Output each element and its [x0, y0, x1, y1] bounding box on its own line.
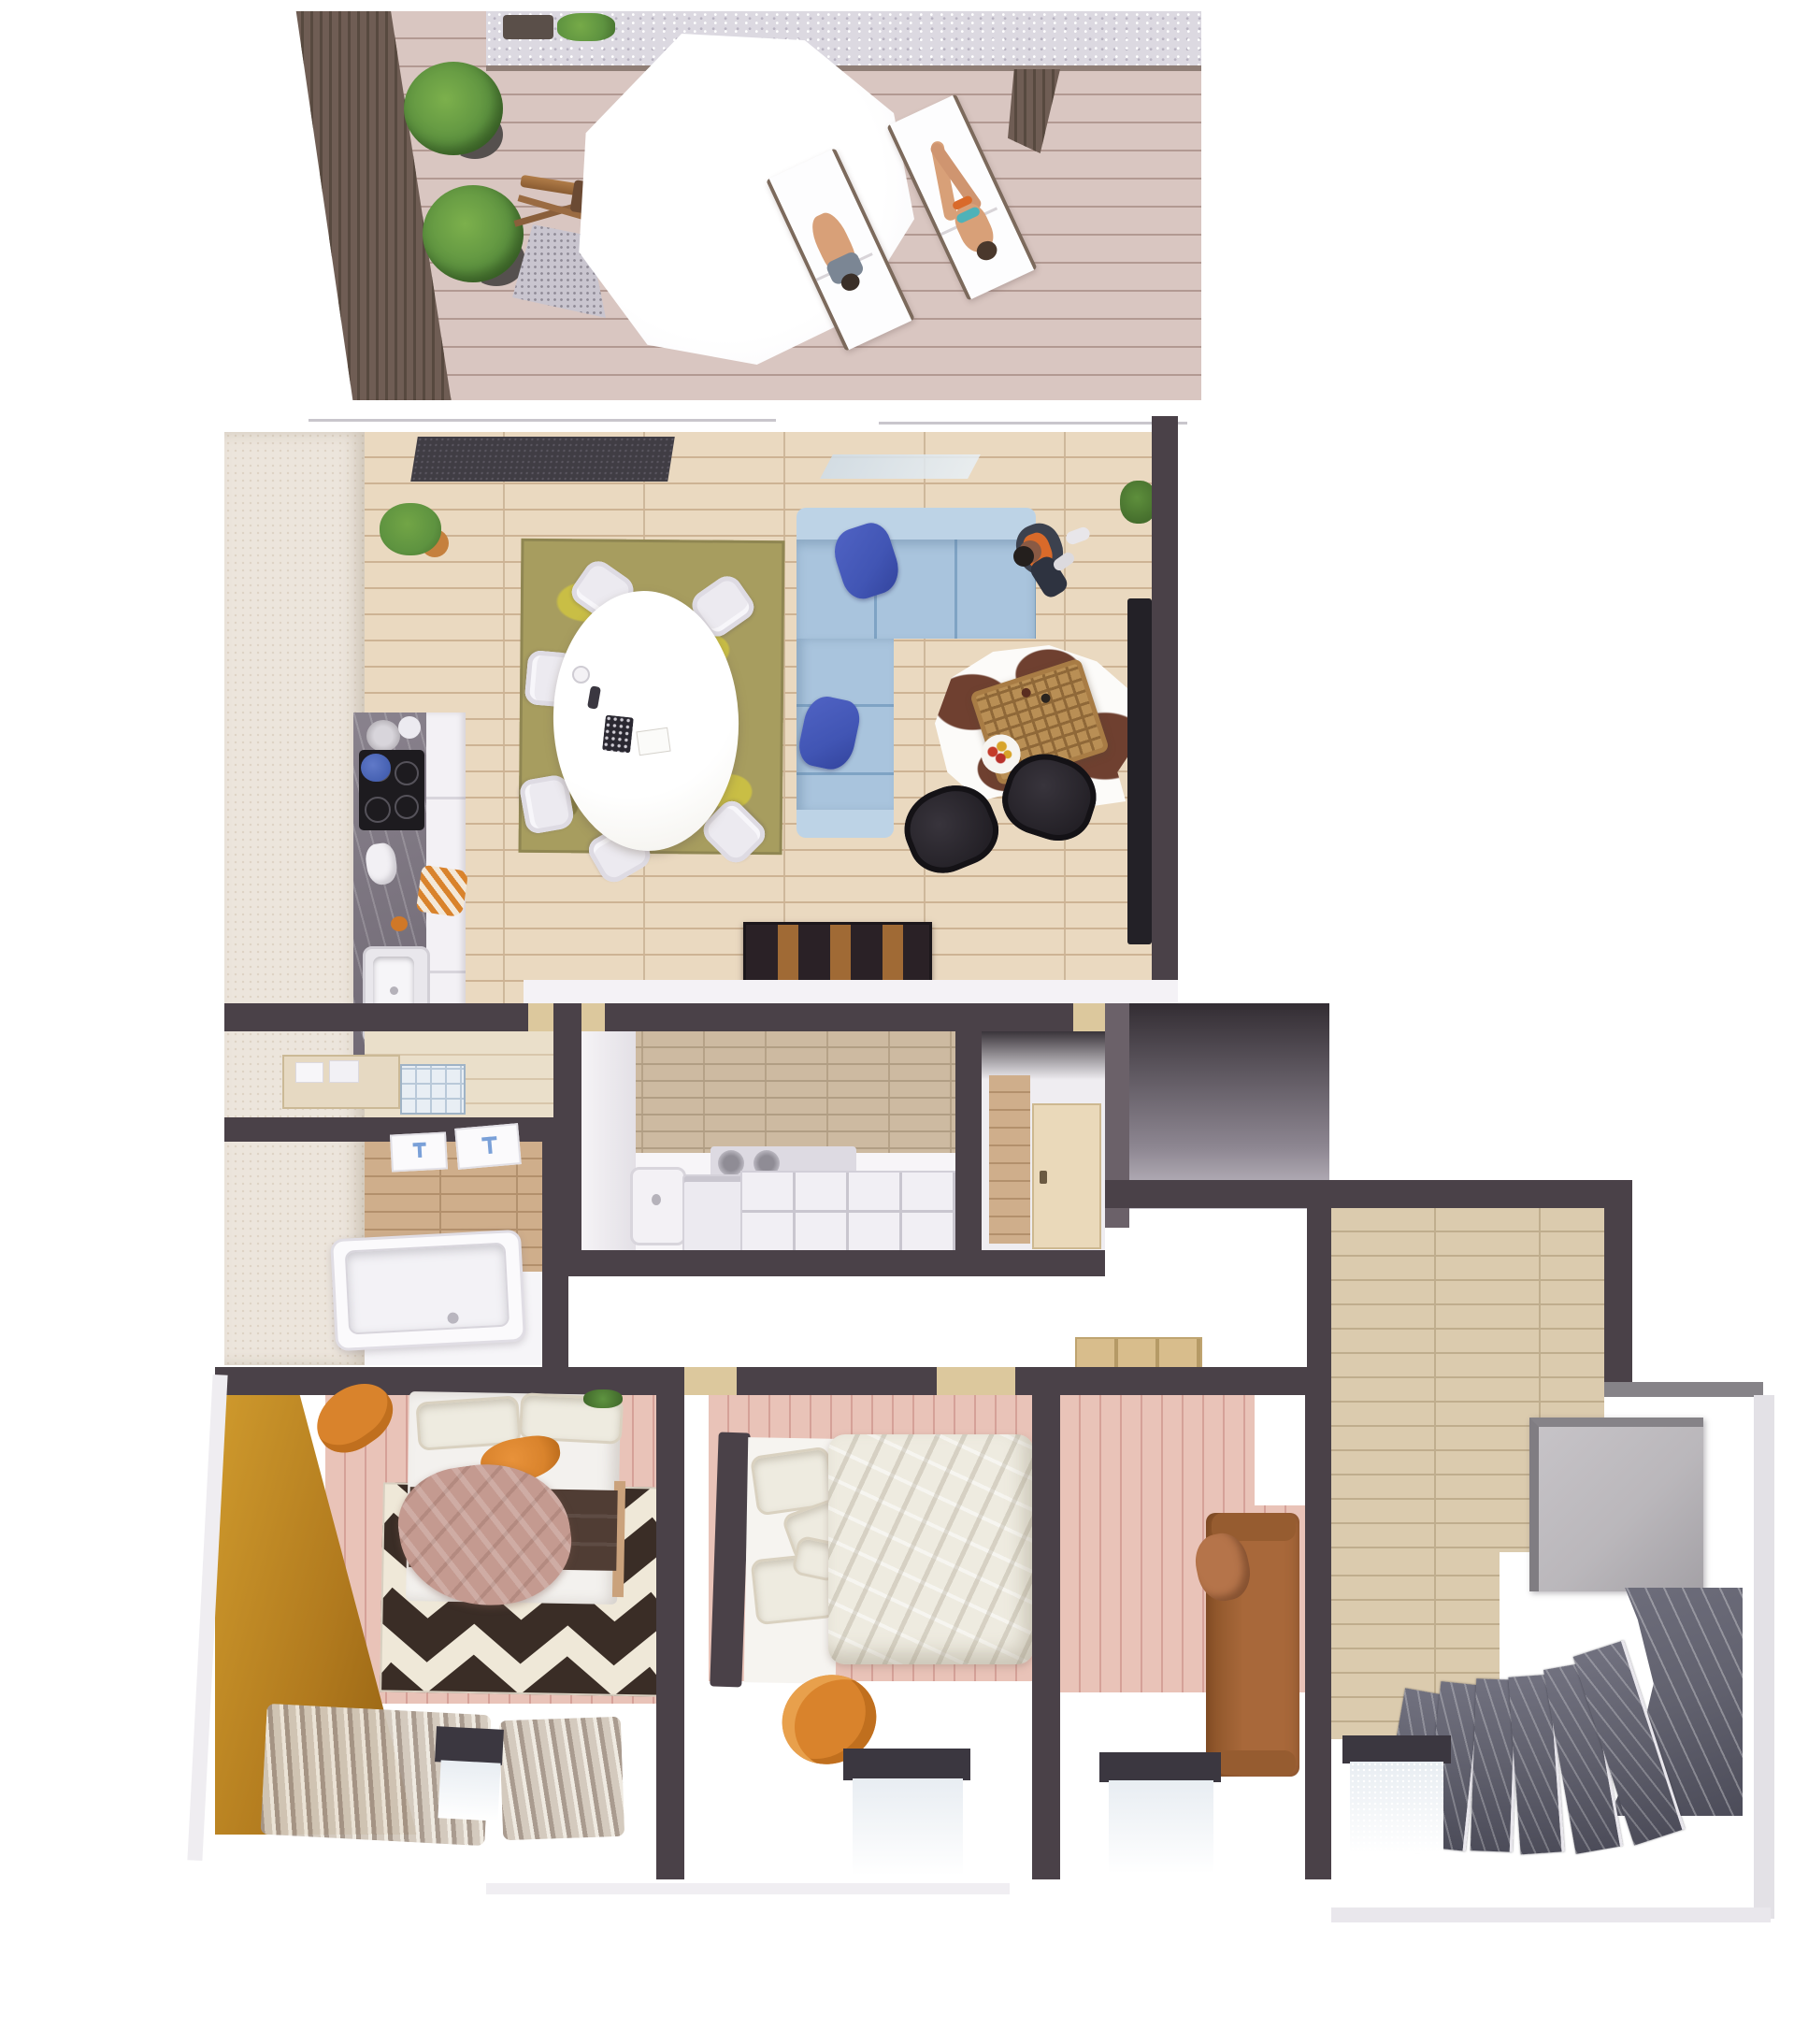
table-board-game — [602, 715, 634, 754]
orange-fruit — [391, 916, 408, 931]
topiary-plant — [423, 185, 524, 282]
closet-shadow — [982, 1031, 1105, 1080]
sliding-door-frame-line — [309, 419, 776, 422]
exterior-wall-faint — [486, 1883, 1010, 1894]
doormat — [410, 437, 675, 482]
towel-radiator — [454, 1123, 522, 1170]
storage-box — [295, 1062, 323, 1083]
bedroom-divider-wall — [656, 1367, 684, 1879]
hall-north-wall — [1105, 1180, 1632, 1208]
white-teapot — [398, 716, 421, 739]
bedroom-divider-wall — [1032, 1367, 1060, 1879]
middle-zone-south-wall — [553, 1250, 1105, 1276]
bedroom-right-doorway — [1255, 1395, 1309, 1505]
landing-pad — [1529, 1418, 1703, 1591]
closet-door — [1032, 1103, 1101, 1249]
towel-radiator — [390, 1131, 448, 1172]
burner — [365, 797, 391, 823]
glass-block-panel — [400, 1064, 466, 1115]
laundry-right-wall — [955, 1003, 982, 1253]
sofa-back-top — [797, 508, 1036, 540]
checkered-towel — [416, 865, 468, 917]
table-cup — [572, 666, 590, 684]
hedge-plant — [557, 13, 615, 41]
storage-box — [329, 1060, 359, 1083]
washing-machine — [682, 1174, 744, 1253]
laundry-sink-drain — [652, 1194, 661, 1205]
sofa-seats-top — [797, 540, 1036, 639]
potted-plant-foliage — [380, 503, 441, 555]
storage-cubbies — [740, 1171, 959, 1253]
exterior-wall-faint — [1331, 1907, 1771, 1922]
hall-east-wall — [1604, 1208, 1632, 1384]
window-frame — [435, 1726, 504, 1765]
sliding-door-frame-line — [879, 422, 1187, 425]
bathroom-right-wall — [542, 1117, 568, 1367]
sofa-armrest — [797, 810, 894, 838]
person-standing-hair — [1013, 546, 1034, 567]
left-exterior-wall-face — [224, 432, 365, 1365]
door-handle — [1040, 1171, 1047, 1184]
bathtub — [330, 1230, 526, 1352]
stair-window-glass — [1350, 1762, 1443, 1853]
floor-plan-render — [0, 0, 1794, 2044]
living-right-wall — [1152, 416, 1178, 1005]
burner — [395, 795, 419, 819]
laundry-sink — [630, 1167, 686, 1245]
living-south-wall — [224, 1003, 1180, 1031]
skylight-glass — [820, 454, 981, 479]
window-frame — [843, 1749, 970, 1780]
curtains — [499, 1717, 624, 1840]
bed-middle-duvet — [828, 1434, 1034, 1664]
daybed-bolster — [1215, 1750, 1296, 1775]
blue-pot — [361, 754, 391, 782]
terrace-living-wall-band — [224, 400, 1206, 432]
wall-tv — [1127, 598, 1152, 944]
window-frame — [1099, 1752, 1221, 1782]
hedge-planter — [503, 15, 553, 39]
sink-drain — [390, 986, 398, 995]
topiary-plant — [404, 62, 503, 155]
bathtub-basin — [345, 1243, 509, 1335]
corner-plant — [583, 1389, 623, 1408]
closet-wood-wall — [989, 1075, 1030, 1244]
window-glass — [853, 1778, 963, 1876]
laundry-back-wall — [581, 1031, 955, 1153]
burner — [395, 761, 419, 785]
game-piece — [1040, 692, 1052, 704]
door-threshold — [937, 1367, 1015, 1395]
hall-east-ledge — [1604, 1382, 1763, 1397]
hall-west-wall — [1307, 1208, 1331, 1554]
game-piece — [1020, 687, 1032, 699]
hall-console — [282, 1055, 400, 1109]
wall-ledge — [524, 980, 1178, 1004]
table-magazine — [636, 727, 670, 756]
laundry-side-wall-face — [581, 1031, 636, 1250]
plate-stack — [366, 720, 400, 752]
exterior-wall-faint — [1754, 1395, 1774, 1919]
radiator-hook — [417, 1143, 422, 1158]
stair-window-frame — [1342, 1735, 1451, 1763]
stair-void — [1105, 1003, 1329, 1209]
window-glass — [438, 1760, 500, 1821]
window-glass — [1109, 1780, 1213, 1874]
